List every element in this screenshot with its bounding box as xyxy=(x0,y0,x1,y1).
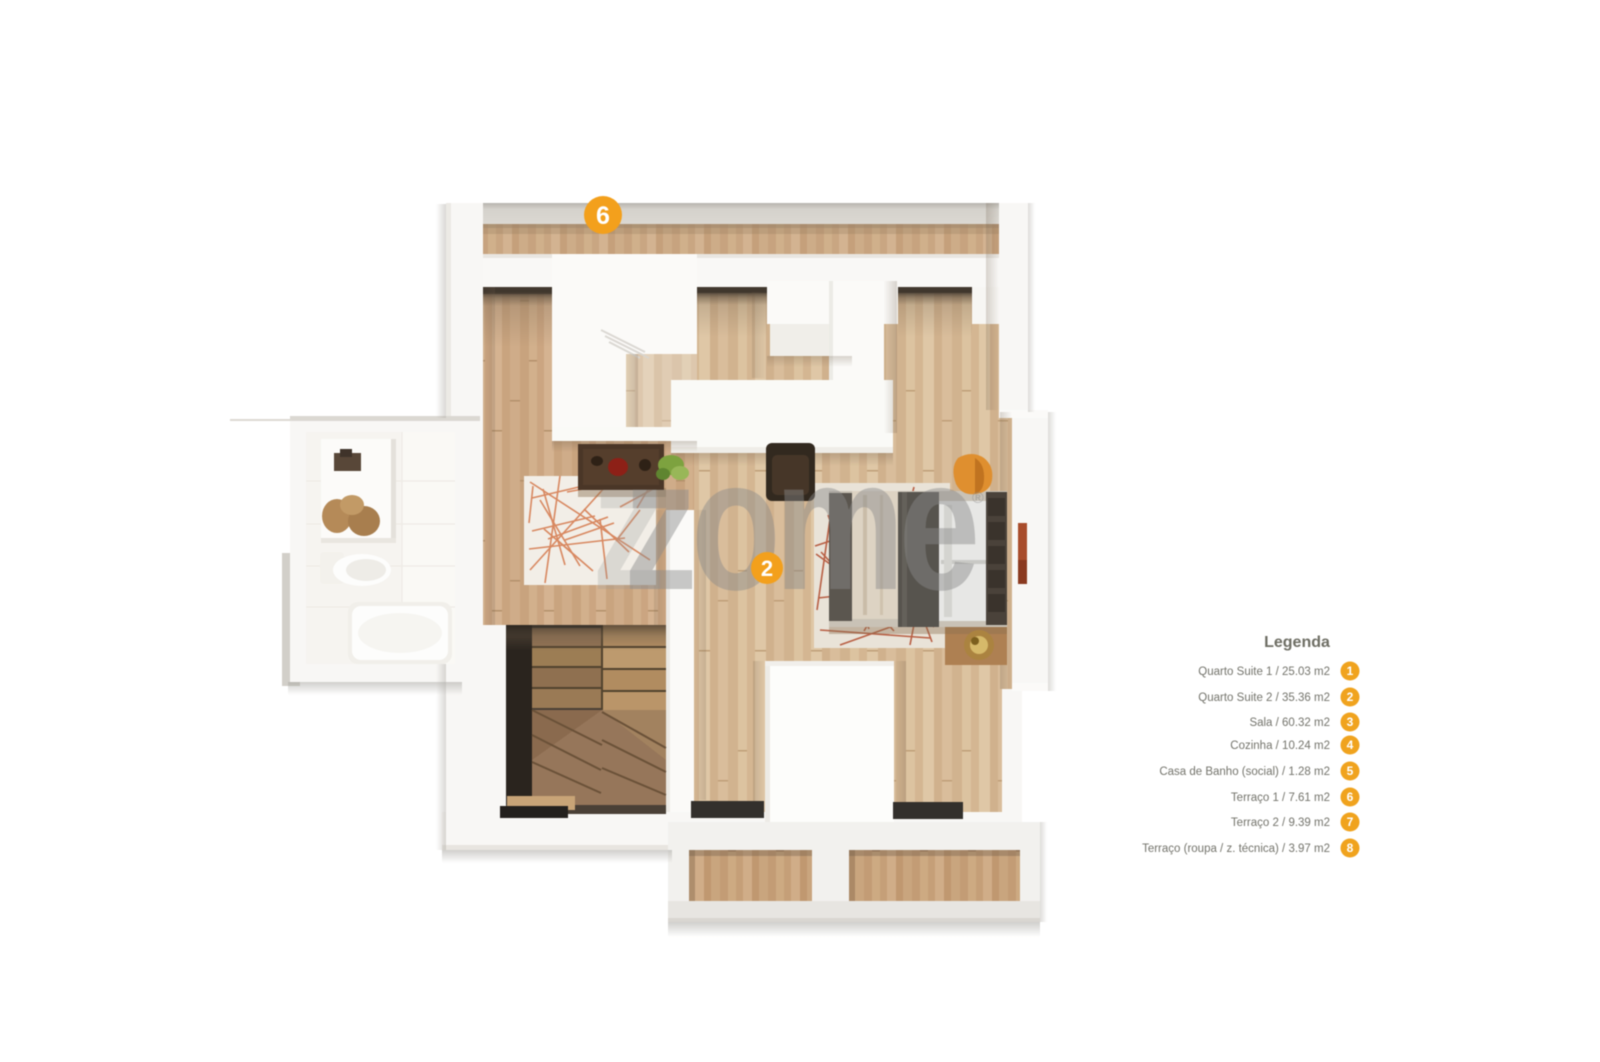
svg-text:z: z xyxy=(592,418,665,629)
svg-text:zome: zome xyxy=(624,418,975,629)
svg-text:7: 7 xyxy=(1347,815,1354,829)
svg-text:6: 6 xyxy=(1347,790,1354,804)
svg-text:4: 4 xyxy=(1347,738,1354,752)
svg-text:Terraço (roupa / z. técnica) /: Terraço (roupa / z. técnica) / 3.97 m2 xyxy=(1142,843,1330,855)
svg-text:5: 5 xyxy=(1347,764,1354,778)
svg-text:Terraço 1 / 7.61 m2: Terraço 1 / 7.61 m2 xyxy=(1231,792,1330,804)
svg-text:Casa de Banho (social) / 1.28: Casa de Banho (social) / 1.28 m2 xyxy=(1159,766,1330,778)
svg-text:2: 2 xyxy=(761,556,773,581)
svg-text:Cozinha / 10.24 m2: Cozinha / 10.24 m2 xyxy=(1230,740,1330,752)
svg-text:6: 6 xyxy=(596,202,610,230)
svg-text:Quarto Suite 1 / 25.03 m2: Quarto Suite 1 / 25.03 m2 xyxy=(1198,666,1330,678)
svg-text:Quarto Suite 2 / 35.36 m2: Quarto Suite 2 / 35.36 m2 xyxy=(1198,692,1330,704)
svg-text:2: 2 xyxy=(1347,690,1354,704)
svg-text:Legenda: Legenda xyxy=(1264,634,1330,651)
svg-text:®: ® xyxy=(972,490,984,507)
svg-text:3: 3 xyxy=(1347,715,1354,729)
svg-text:Terraço 2 / 9.39 m2: Terraço 2 / 9.39 m2 xyxy=(1231,817,1330,829)
svg-text:1: 1 xyxy=(1347,664,1354,678)
svg-text:8: 8 xyxy=(1347,841,1354,855)
svg-text:Sala / 60.32 m2: Sala / 60.32 m2 xyxy=(1249,717,1330,729)
